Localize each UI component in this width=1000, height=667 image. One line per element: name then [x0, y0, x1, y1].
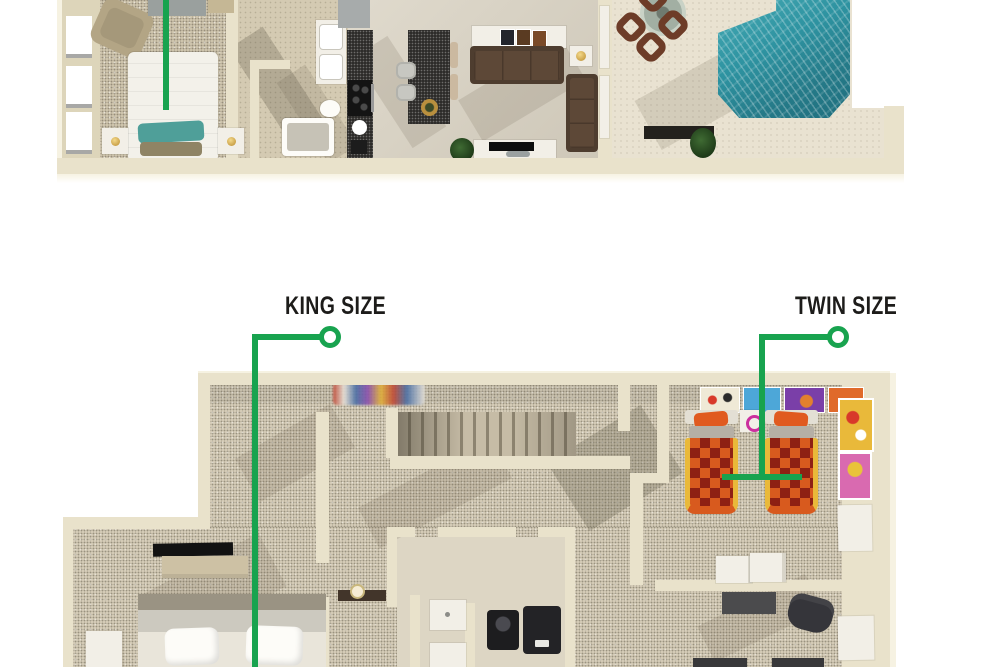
- callout-line-top-bed: [163, 0, 169, 110]
- twin-callout-circle: [827, 326, 849, 348]
- king-callout-hline: [255, 334, 321, 340]
- twin-callout-tbar: [722, 474, 802, 480]
- king-callout-circle: [319, 326, 341, 348]
- floor-plan-scene: KING SIZE TWIN SIZE: [0, 0, 1000, 667]
- king-callout-vline: [252, 334, 258, 667]
- king-size-label: KING SIZE: [285, 294, 386, 319]
- twin-callout-vline: [759, 334, 765, 480]
- twin-size-label: TWIN SIZE: [795, 294, 897, 319]
- twin-callout-hline: [762, 334, 829, 340]
- callout-annotations: KING SIZE TWIN SIZE: [0, 0, 1000, 667]
